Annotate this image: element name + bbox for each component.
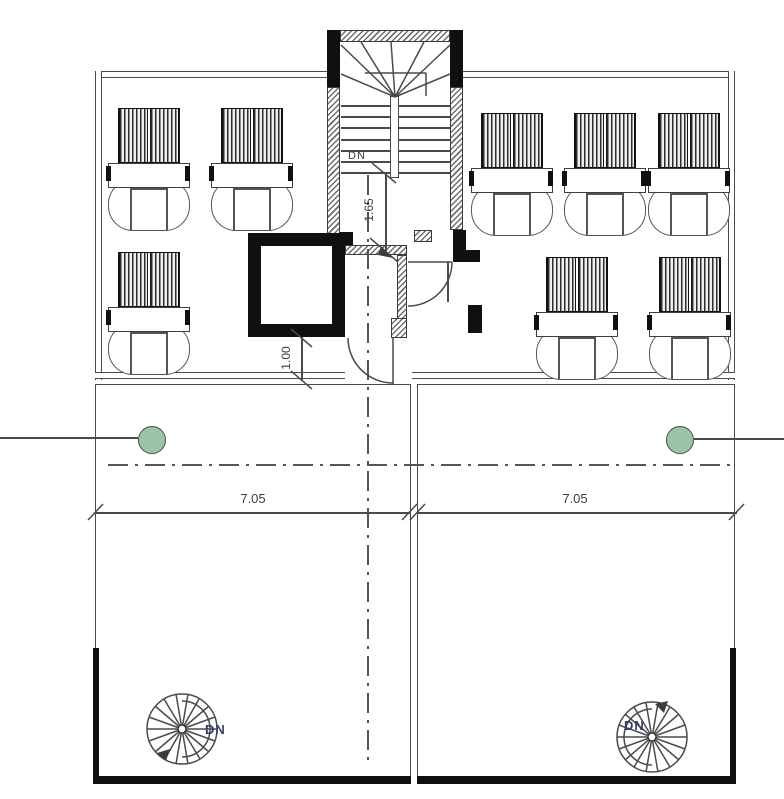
spiral-left-dn-label: DN [205,722,226,737]
desk-tab [469,171,474,186]
desk-tab [562,171,567,186]
workstation-desk [648,168,730,193]
workstation-panel [574,113,636,168]
desk-tab [288,166,293,181]
desk-tab [106,310,111,325]
desk-tab [534,315,539,330]
stair-direction-arrowhead [378,246,393,258]
workstation-panel [658,113,720,168]
door-swing-right [408,262,452,306]
desk-tab [209,166,214,181]
workstation-panel [118,252,180,307]
workstation-panel [118,108,180,163]
workstation-desk [211,163,293,188]
desk-tab [646,171,651,186]
desk-tab [613,315,618,330]
desk-tab [726,315,731,330]
workstation [649,257,729,379]
stair-winder-fan [341,42,450,97]
workstation-panel [221,108,283,163]
workstation-desk [471,168,553,193]
desk-tab [185,310,190,325]
workstation [564,113,644,235]
workstation [471,113,551,235]
workstation-desk [536,312,618,337]
spiral-stair-right [617,702,687,772]
workstation-desk [108,163,190,188]
desk-tab [185,166,190,181]
door-swing-bottom [348,338,393,384]
desk-tab [647,315,652,330]
floor-plan: DN 7.05 7.05 1.65 1.00 [0,0,784,799]
workstation-panel [659,257,721,312]
desk-tab [725,171,730,186]
workstation-panel [481,113,543,168]
workstation [108,252,188,374]
desk-tab [106,166,111,181]
workstation-desk [649,312,731,337]
workstation [108,108,188,230]
workstation-desk [564,168,646,193]
workstation [536,257,616,379]
desk-tab [548,171,553,186]
workstation-desk [108,307,190,332]
workstation [648,113,728,235]
workstation-panel [546,257,608,312]
spiral-right-dn-label: DN [624,718,645,733]
workstation [211,108,291,230]
